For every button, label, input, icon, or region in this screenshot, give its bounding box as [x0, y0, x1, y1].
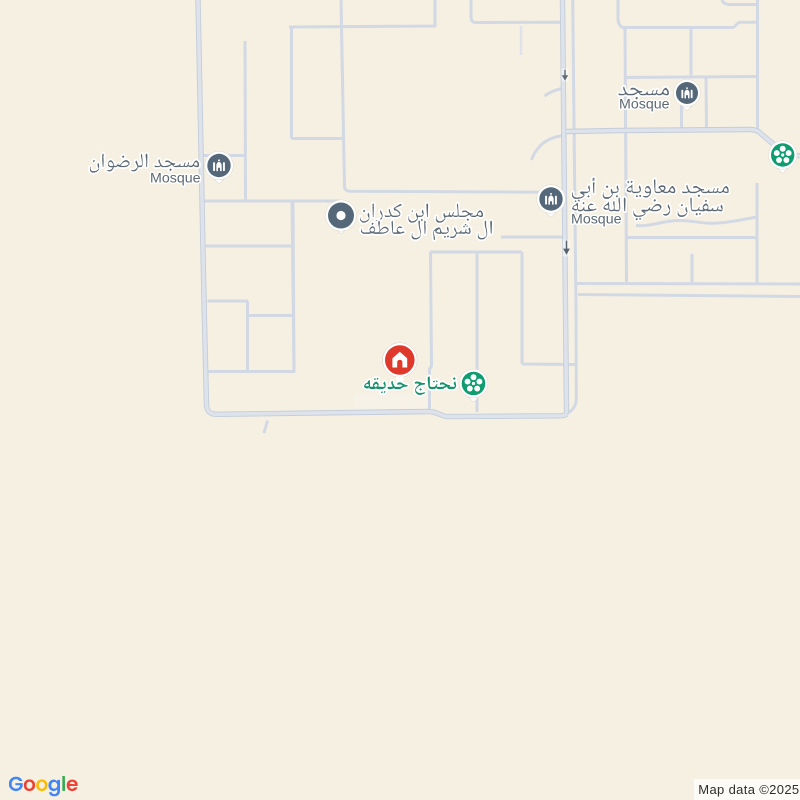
svg-text:Mosque: Mosque: [619, 97, 670, 113]
svg-text:Mosque: Mosque: [150, 171, 201, 187]
svg-text:Mosque: Mosque: [571, 212, 622, 228]
svg-text:Map data ©2025: Map data ©2025: [698, 782, 799, 797]
